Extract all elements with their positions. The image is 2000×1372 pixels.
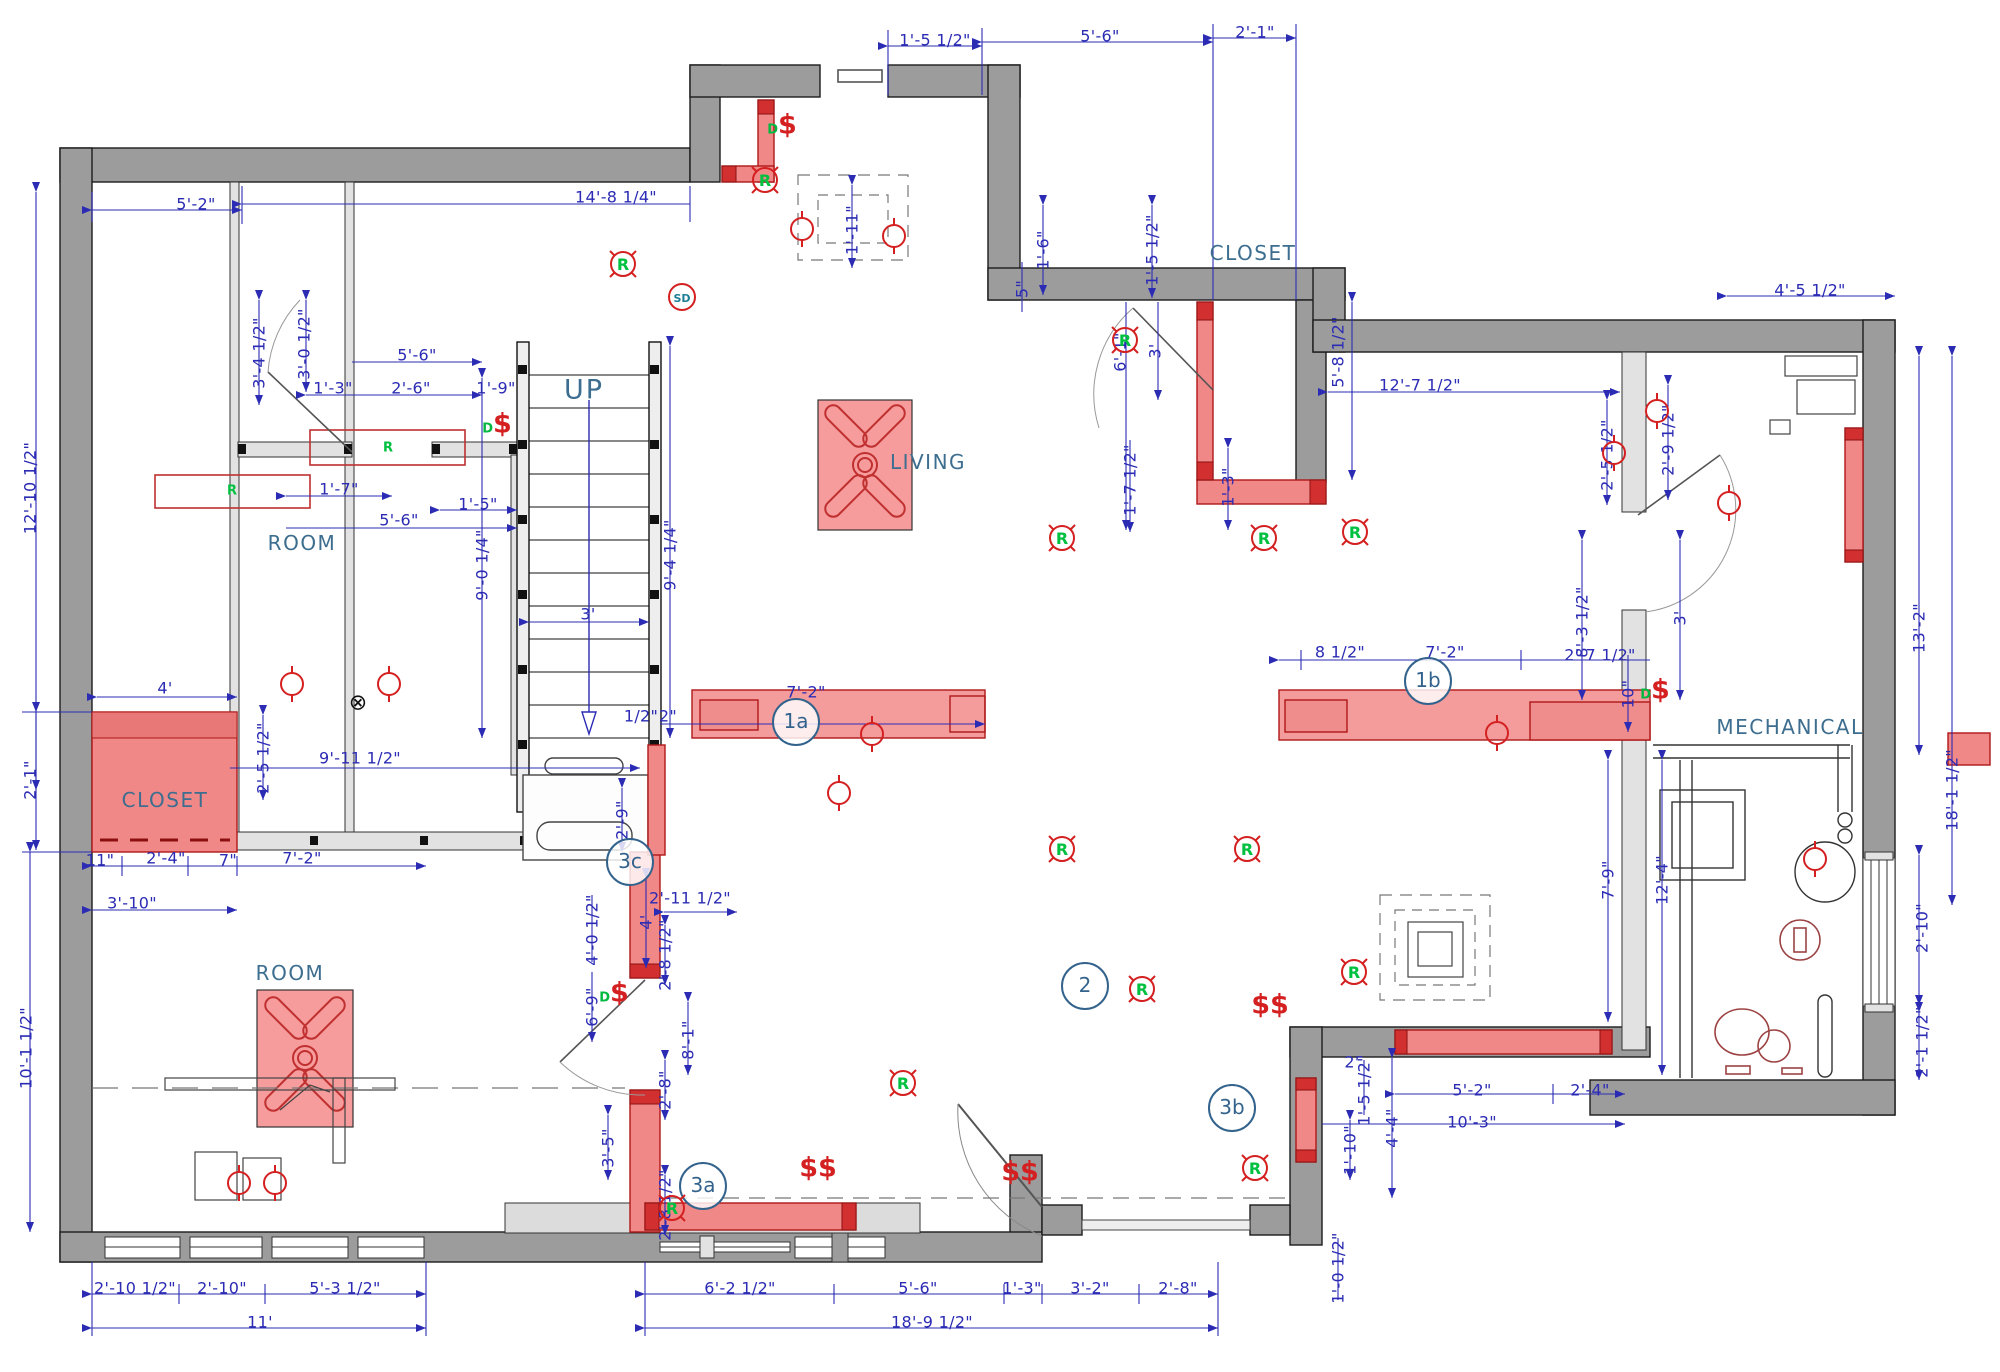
- dimension-label: 2'-4": [146, 849, 185, 868]
- reference-marker-1a: 1a: [772, 698, 820, 746]
- dimension-label: 2'-4": [1570, 1081, 1609, 1100]
- dimension-label: 4': [637, 914, 656, 929]
- dimension-label: 2'-1": [21, 760, 40, 799]
- floor-plan-canvas: 5'-2"14'-8 1/4"1'-5 1/2"5'-6"2'-1"3'-4 1…: [0, 0, 2000, 1372]
- dimension-label: 2'-6": [391, 379, 430, 398]
- svg-text:R: R: [1349, 523, 1361, 542]
- switch-icon: D$: [767, 112, 797, 139]
- dimension-label: 7": [219, 851, 237, 870]
- dimension-label: 5'-3 1/2": [309, 1279, 380, 1298]
- dimension-label: 12'-10 1/2": [21, 442, 40, 534]
- svg-text:R: R: [1258, 529, 1270, 548]
- dimension-label: 9'-11 1/2": [319, 749, 401, 768]
- dimension-label: 1'-7 1/2": [1121, 444, 1140, 515]
- dimension-label: 2'-1 1/2": [1913, 1006, 1932, 1077]
- dimension-label: 1'-7": [319, 480, 358, 499]
- dimension-label: 10'-3": [1447, 1113, 1497, 1132]
- dimension-label: 1'-5 1/2": [899, 31, 970, 50]
- fixture-tag-label: R: [383, 441, 393, 456]
- dimension-label: 5'-2": [176, 195, 215, 214]
- dimension-label: 5'-8 1/2": [1329, 316, 1348, 387]
- dimension-label: 7'-2": [282, 849, 321, 868]
- double-switch-icon: $$: [1251, 992, 1289, 1019]
- svg-text:R: R: [1119, 331, 1131, 350]
- dimension-label: 2'-11 1/2": [649, 889, 731, 908]
- dimension-label: 1/2": [624, 707, 658, 726]
- switch-icon: D$: [482, 411, 512, 438]
- junction-box-icon: ⊗: [349, 691, 367, 716]
- dimension-label: 18'-1 1/2": [1943, 749, 1962, 831]
- double-switch-icon: $$: [799, 1155, 837, 1182]
- dimension-label: 1'-0 1/2": [1329, 1232, 1348, 1303]
- dimension-label: 3'-4 1/2": [250, 317, 269, 388]
- dimension-label: 5'-6": [379, 511, 418, 530]
- dimension-label: 12'-4": [1653, 855, 1672, 905]
- dimension-label: 4'-5 1/2": [1774, 281, 1845, 300]
- switch-icon: D$: [1640, 677, 1670, 704]
- dimension-label: 1'-5": [458, 495, 497, 514]
- dimension-label: 3'-10": [107, 894, 157, 913]
- dimension-label: 1'-11": [843, 205, 862, 255]
- dimension-label: 1'-3": [1002, 1279, 1041, 1298]
- room-label: CLOSET: [1210, 241, 1297, 265]
- svg-text:R: R: [617, 255, 629, 274]
- dimension-label: 8'-1": [679, 1020, 698, 1059]
- dimension-label: 8 1/2": [1315, 643, 1365, 662]
- dimension-label: 3': [580, 605, 595, 624]
- dimension-label: 2'-1": [1235, 23, 1274, 42]
- dimension-label: 2": [659, 707, 677, 726]
- dimension-label: 5'-6": [898, 1279, 937, 1298]
- reference-marker-3c: 3c: [606, 838, 654, 886]
- dimension-label: 10'-1 1/2": [17, 1007, 36, 1089]
- svg-text:SD: SD: [673, 292, 690, 305]
- svg-text:R: R: [759, 171, 771, 190]
- dimension-label: 2'-5 1/2": [254, 722, 273, 793]
- dimension-label: 4'-0 1/2": [583, 894, 602, 965]
- svg-text:R: R: [1348, 963, 1360, 982]
- dimension-label: 4'-4": [1383, 1108, 1402, 1147]
- room-label: LIVING: [890, 450, 966, 474]
- dimension-label: 1'-10": [1341, 1125, 1360, 1175]
- dimension-label: 1'-5 1/2": [1355, 1054, 1374, 1125]
- room-label: CLOSET: [122, 788, 209, 812]
- svg-text:R: R: [666, 1199, 678, 1218]
- svg-text:R: R: [1249, 1159, 1261, 1178]
- dimension-label: 2'-10": [1913, 903, 1932, 953]
- dimension-label: 4': [157, 679, 172, 698]
- dimension-label: 1'-3": [313, 379, 352, 398]
- dimension-label: 10": [1619, 680, 1638, 709]
- room-label: UP: [564, 375, 604, 406]
- dimension-label: 12'-7 1/2": [1379, 376, 1461, 395]
- room-label: ROOM: [256, 961, 325, 985]
- reference-marker-3b: 3b: [1208, 1084, 1256, 1132]
- dimension-label: 14'-8 1/4": [575, 188, 657, 207]
- svg-text:R: R: [1056, 529, 1068, 548]
- dimension-label: 2'-8": [656, 1070, 675, 1109]
- dimension-label: 5'-2": [1452, 1081, 1491, 1100]
- dimension-label: 11": [86, 851, 115, 870]
- room-label: ROOM: [268, 531, 337, 555]
- switch-icon: D$: [599, 980, 629, 1007]
- dimension-label: 13'-2": [1910, 603, 1929, 653]
- dimension-label: 1'-9": [476, 379, 515, 398]
- dimension-label: 18'-9 1/2": [891, 1313, 973, 1332]
- dimension-label: 5": [1013, 280, 1032, 298]
- dimension-label: 11': [247, 1313, 273, 1332]
- dimension-label: 1'-3": [1219, 467, 1238, 506]
- double-switch-icon: $$: [1001, 1159, 1039, 1186]
- reference-marker-2: 2: [1061, 962, 1109, 1010]
- dimension-label: 1'-5 1/2": [1143, 214, 1162, 285]
- dimension-label: 2'-7 1/2": [1564, 646, 1635, 665]
- dimension-label: 3'-5": [599, 1128, 618, 1167]
- dimension-label: 2'-10 1/2": [94, 1279, 176, 1298]
- dimension-label: 3': [1671, 610, 1690, 625]
- svg-text:R: R: [1056, 840, 1068, 859]
- svg-text:R: R: [1136, 980, 1148, 999]
- dimension-label: 3': [1146, 343, 1165, 358]
- dimension-label: 2'-9": [613, 800, 632, 839]
- dimension-label: 2'-10": [197, 1279, 247, 1298]
- dimension-label: 2'-8": [1158, 1279, 1197, 1298]
- dimension-label: 5'-6": [397, 346, 436, 365]
- room-label: MECHANICAL: [1716, 715, 1863, 739]
- dimension-label: 3'-2": [1070, 1279, 1109, 1298]
- dimension-label: 3'-0 1/2": [295, 308, 314, 379]
- dimension-label: 7'-9": [1599, 860, 1618, 899]
- dimension-label: 9'-4 1/4": [661, 519, 680, 590]
- svg-text:R: R: [1241, 840, 1253, 859]
- fixture-tag-label: R: [227, 484, 237, 499]
- dimension-label: 9'-0 1/4": [473, 529, 492, 600]
- reference-marker-1b: 1b: [1404, 657, 1452, 705]
- text-overlay: 5'-2"14'-8 1/4"1'-5 1/2"5'-6"2'-1"3'-4 1…: [0, 0, 2000, 1372]
- dimension-label: 2'-8 1/2": [656, 919, 675, 990]
- svg-text:R: R: [897, 1074, 909, 1093]
- dimension-label: 6'-2 1/2": [704, 1279, 775, 1298]
- dimension-label: 1'-6": [1034, 230, 1053, 269]
- dimension-label: 5'-6": [1080, 27, 1119, 46]
